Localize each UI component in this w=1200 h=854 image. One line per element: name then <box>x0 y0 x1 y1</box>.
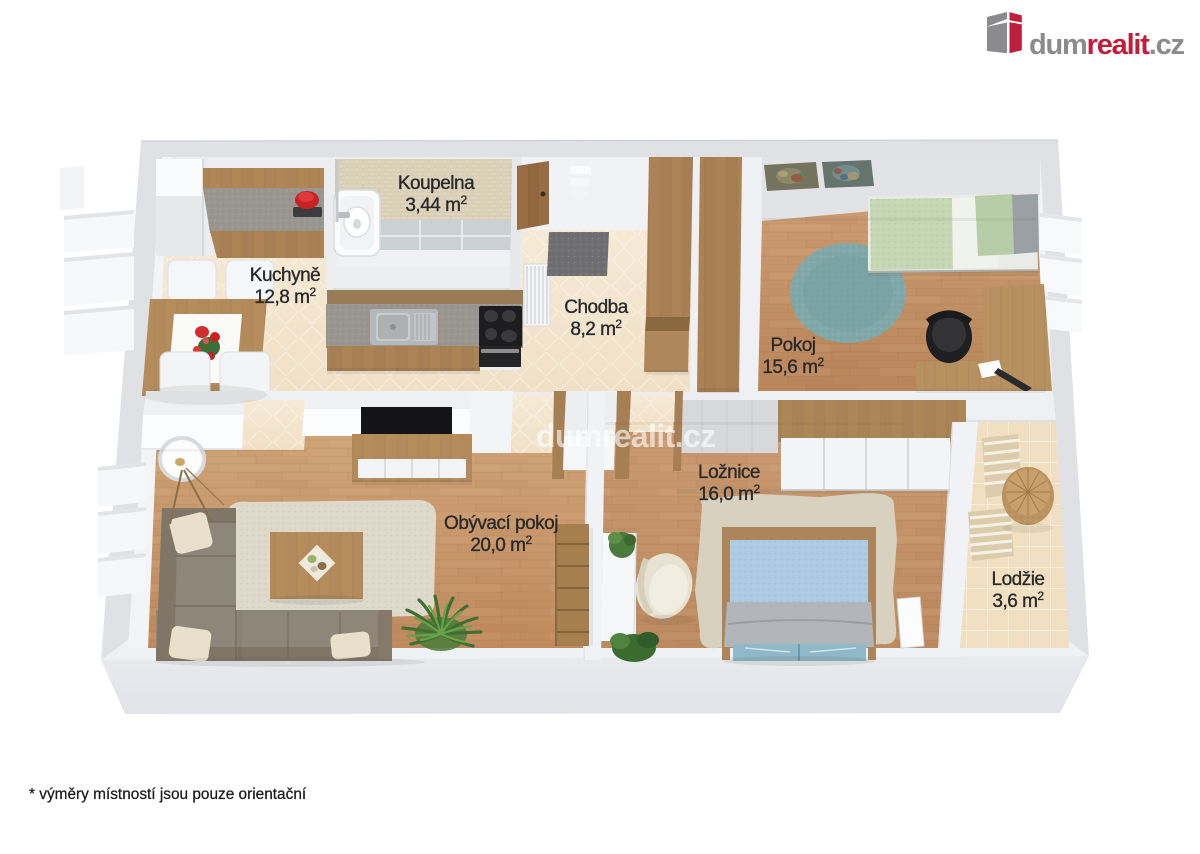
svg-text:3,44 m2: 3,44 m2 <box>405 193 467 216</box>
svg-text:dumrealit.cz: dumrealit.cz <box>1029 29 1185 61</box>
svg-text:15,6 m2: 15,6 m2 <box>762 355 824 378</box>
svg-text:16,0 m2: 16,0 m2 <box>698 482 760 505</box>
svg-text:Koupelna: Koupelna <box>398 173 475 194</box>
svg-text:Kuchyně: Kuchyně <box>250 265 320 286</box>
svg-text:12,8 m2: 12,8 m2 <box>254 285 316 308</box>
svg-text:Pokoj: Pokoj <box>770 335 815 356</box>
svg-text:Obývací pokoj: Obývací pokoj <box>444 513 558 534</box>
svg-text:Ložnice: Ložnice <box>698 462 760 483</box>
svg-text:Lodžie: Lodžie <box>992 569 1045 590</box>
svg-text:8,2 m2: 8,2 m2 <box>570 317 622 340</box>
svg-text:Chodba: Chodba <box>564 297 628 318</box>
svg-text:dumrealit.cz: dumrealit.cz <box>536 418 716 454</box>
svg-text:3,6 m2: 3,6 m2 <box>992 589 1044 612</box>
svg-text:* výměry místností jsou pouze: * výměry místností jsou pouze orientační <box>29 786 307 803</box>
svg-text:20,0 m2: 20,0 m2 <box>470 533 532 556</box>
